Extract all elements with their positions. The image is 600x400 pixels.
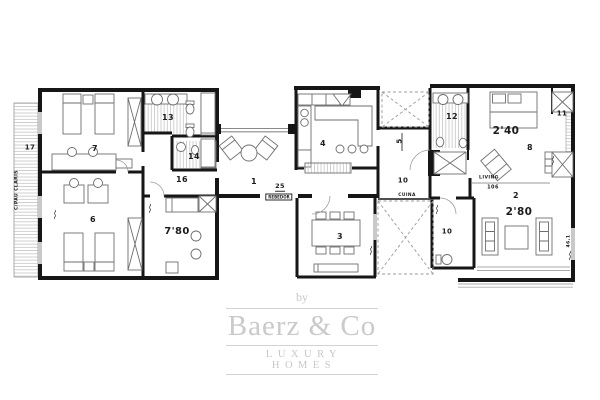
balcony-strip-left xyxy=(14,103,38,277)
watermark-by: by xyxy=(226,290,378,305)
watermark-rule-middle xyxy=(226,345,378,346)
balcony-lines-bottom-right xyxy=(458,267,573,287)
watermark-rule-bottom xyxy=(226,374,378,375)
floor-plan-page: C/PAU CLARIS17713141667'80125REBEDOR4510… xyxy=(0,0,600,400)
watermark-brand: Baerz & Co xyxy=(226,311,378,343)
watermark-tagline: LUXURY HOMES xyxy=(230,349,378,371)
entry-window xyxy=(221,129,288,132)
patio-lightwells xyxy=(378,92,433,274)
watermark: by Baerz & Co LUXURY HOMES xyxy=(226,290,378,377)
furniture xyxy=(52,92,573,273)
watermark-rule-top xyxy=(226,308,378,309)
